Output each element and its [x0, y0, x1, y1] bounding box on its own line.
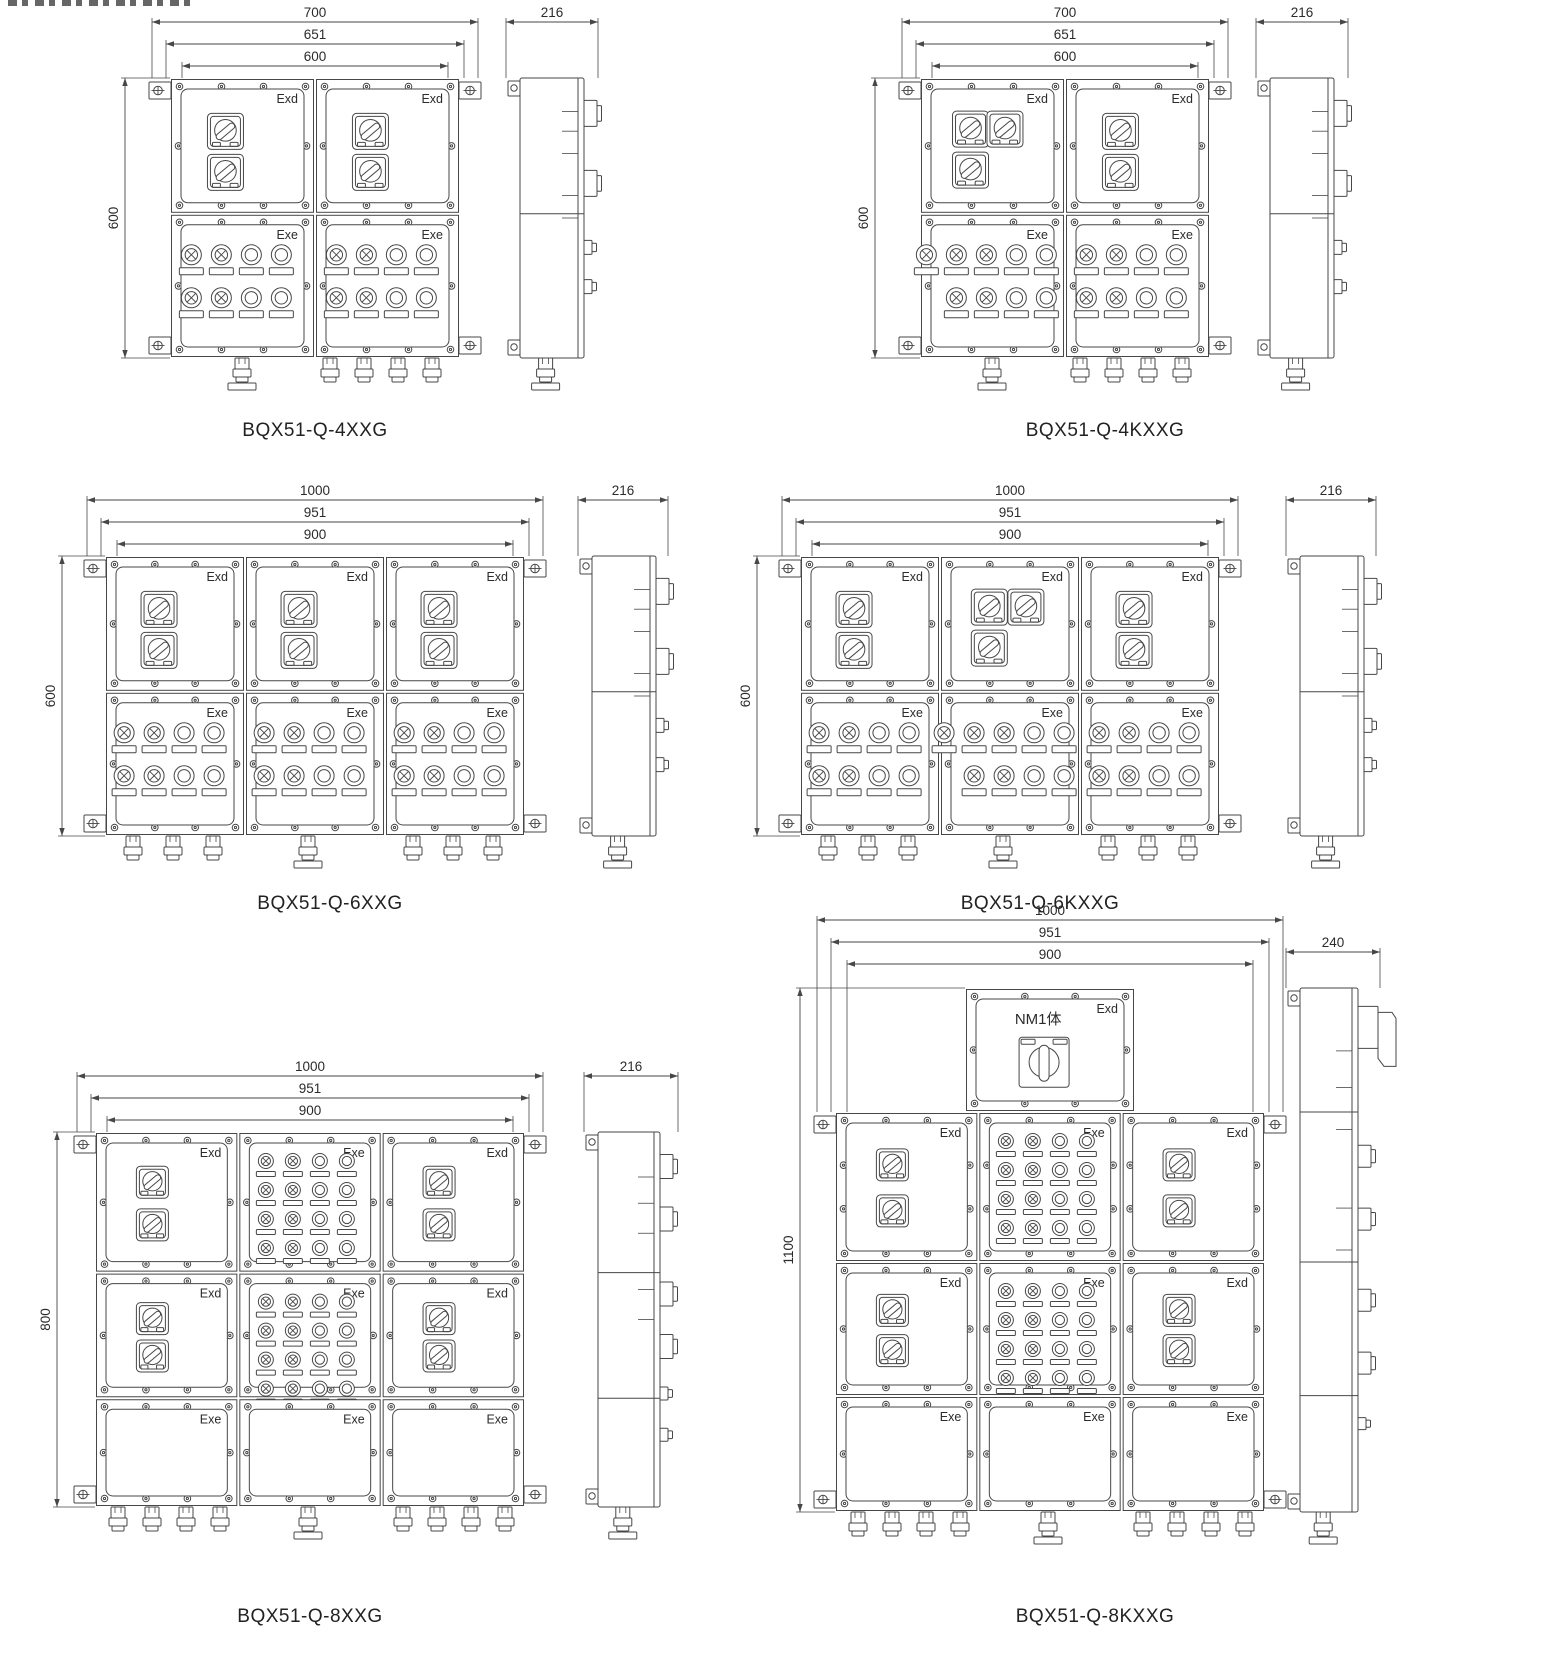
svg-text:Exe: Exe	[421, 228, 443, 242]
push-button	[1052, 1284, 1067, 1299]
cable-gland	[321, 358, 339, 382]
rotary-switch	[141, 591, 177, 627]
cable-gland	[883, 1512, 901, 1536]
push-button	[285, 1241, 300, 1256]
push-button	[484, 766, 504, 786]
push-button	[1025, 1371, 1040, 1386]
dimension: 600	[182, 49, 448, 78]
rotary-switch	[141, 632, 177, 668]
push-button	[1179, 723, 1199, 743]
push-button	[1052, 1163, 1067, 1178]
push-button	[1079, 1134, 1094, 1149]
svg-text:600: 600	[43, 685, 58, 708]
mounting-tab	[1219, 560, 1241, 577]
push-button	[339, 1323, 354, 1338]
push-button	[314, 723, 334, 743]
svg-text:216: 216	[1320, 483, 1343, 498]
push-button	[964, 723, 984, 743]
svg-text:1000: 1000	[300, 483, 330, 498]
push-button	[356, 288, 376, 308]
svg-text:900: 900	[999, 527, 1022, 542]
push-button	[271, 288, 291, 308]
push-button	[869, 766, 889, 786]
svg-text:Exd: Exd	[1096, 1002, 1118, 1016]
push-button	[271, 245, 291, 265]
cable-gland	[1139, 358, 1157, 382]
figure-caption: BQX51-Q-4KXXG	[935, 420, 1275, 442]
side-view: 216	[584, 1059, 678, 1539]
rotary-switch	[352, 113, 388, 149]
push-button	[1106, 288, 1126, 308]
push-button	[312, 1294, 327, 1309]
cable-glands	[228, 358, 441, 390]
push-button	[1119, 723, 1139, 743]
rotary-switch	[1008, 589, 1044, 625]
push-button	[211, 245, 231, 265]
cable-gland	[819, 836, 837, 860]
cable-gland	[1071, 358, 1089, 382]
front-view: ExdExdExeExe	[899, 80, 1231, 357]
svg-text:600: 600	[738, 685, 753, 708]
mounting-tab	[1264, 1491, 1286, 1508]
mounting-tab	[74, 1136, 96, 1153]
svg-text:900: 900	[299, 1103, 322, 1118]
dimension: 216	[1286, 483, 1376, 556]
push-button	[258, 1241, 273, 1256]
push-button	[1179, 766, 1199, 786]
push-button	[181, 245, 201, 265]
cable-gland	[951, 1512, 969, 1536]
cable-gland	[1312, 836, 1340, 868]
svg-text:900: 900	[304, 527, 327, 542]
panel-exe: Exe	[387, 693, 524, 834]
push-button	[344, 723, 364, 743]
cable-gland	[444, 836, 462, 860]
push-button	[1052, 1192, 1067, 1207]
dimension: 900	[812, 527, 1208, 556]
cable-gland	[228, 358, 256, 390]
cable-gland	[211, 1507, 229, 1531]
cable-gland	[1168, 1512, 1186, 1536]
svg-text:1000: 1000	[995, 483, 1025, 498]
panel-exd: Exd	[317, 80, 459, 213]
dimension: 216	[578, 483, 668, 556]
svg-text:Exd: Exd	[1171, 92, 1193, 106]
rotary-switch	[876, 1195, 908, 1227]
dimension: 216	[1256, 5, 1348, 78]
push-button	[344, 766, 364, 786]
push-button	[339, 1183, 354, 1198]
svg-text:Exe: Exe	[206, 706, 228, 720]
rotary-switch	[1116, 632, 1152, 668]
push-button	[1025, 1134, 1040, 1149]
push-button	[1006, 288, 1026, 308]
push-button	[1025, 1342, 1040, 1357]
svg-text:Exe: Exe	[346, 706, 368, 720]
push-button	[1052, 1221, 1067, 1236]
push-button	[241, 288, 261, 308]
panel-exd: Exd	[1123, 1264, 1263, 1395]
push-button	[254, 766, 274, 786]
panel-exd: Exd	[97, 1274, 237, 1397]
figure-bqx51-q-6kxxg: 1000951900600ExdExdExdExeExeExe216	[738, 483, 1382, 868]
dimension: 216	[506, 5, 598, 78]
figure-caption: BQX51-Q-8XXG	[140, 1606, 480, 1628]
push-button	[454, 723, 474, 743]
cable-gland	[428, 1507, 446, 1531]
dimension: 900	[117, 527, 513, 556]
panel-exe: Exe	[1123, 1398, 1263, 1511]
rotary-switch	[876, 1335, 908, 1367]
push-button	[839, 723, 859, 743]
svg-text:951: 951	[299, 1081, 322, 1096]
panel-exe: Exe	[172, 215, 314, 356]
svg-text:651: 651	[1054, 27, 1077, 42]
mounting-tab	[779, 560, 801, 577]
push-button	[1136, 288, 1156, 308]
cable-gland	[1139, 836, 1157, 860]
push-button	[1024, 723, 1044, 743]
push-button	[998, 1284, 1013, 1299]
panel-exd: Exd	[383, 1274, 523, 1397]
cable-gland	[355, 358, 373, 382]
dimension: 800	[38, 1132, 95, 1507]
cable-glands	[849, 1512, 1254, 1544]
cable-gland	[1202, 1512, 1220, 1536]
push-button	[416, 288, 436, 308]
dimension: 900	[107, 1103, 513, 1132]
mounting-tab	[524, 815, 546, 832]
push-button	[998, 1371, 1013, 1386]
svg-text:651: 651	[304, 27, 327, 42]
push-button	[998, 1313, 1013, 1328]
panel-exe: Exe	[247, 693, 384, 834]
panel-exd: Exd	[387, 558, 524, 691]
push-button	[1149, 723, 1169, 743]
front-view: ExdExeExdExdExeExdExeExeExe	[74, 1134, 546, 1506]
push-button	[114, 766, 134, 786]
push-button	[1054, 766, 1074, 786]
svg-text:Exe: Exe	[276, 228, 298, 242]
push-button	[339, 1212, 354, 1227]
svg-text:NM1体: NM1体	[1015, 1011, 1062, 1028]
svg-text:Exd: Exd	[940, 1276, 962, 1290]
mounting-tab	[814, 1116, 836, 1133]
push-button	[1052, 1134, 1067, 1149]
panel-exe: Exe	[1082, 693, 1219, 834]
svg-text:1100: 1100	[781, 1235, 796, 1264]
cable-gland	[532, 358, 560, 390]
rotary-switch	[1163, 1335, 1195, 1367]
cable-gland	[124, 836, 142, 860]
svg-text:951: 951	[304, 505, 327, 520]
rotary-switch	[207, 113, 243, 149]
cable-gland	[389, 358, 407, 382]
rotary-switch	[953, 152, 989, 188]
svg-text:600: 600	[304, 49, 327, 64]
cable-gland	[1105, 358, 1123, 382]
push-button	[356, 245, 376, 265]
panel-exd: Exd	[247, 558, 384, 691]
cable-gland	[1099, 836, 1117, 860]
panel-exe: Exe	[932, 693, 1078, 834]
panel-exe: Exe	[240, 1400, 380, 1506]
rotary-switch	[1163, 1195, 1195, 1227]
push-button	[312, 1323, 327, 1338]
cable-gland	[1236, 1512, 1254, 1536]
svg-text:Exd: Exd	[1226, 1126, 1248, 1140]
push-button	[339, 1381, 354, 1396]
side-view: 216	[1256, 5, 1352, 390]
push-button	[211, 288, 231, 308]
rotary-switch	[971, 630, 1007, 666]
front-view: ExdExdExdExeExeExe	[84, 558, 546, 835]
push-button	[1079, 1371, 1094, 1386]
push-button	[285, 1212, 300, 1227]
panel-exe: Exe	[1067, 215, 1209, 356]
cable-gland	[1179, 836, 1197, 860]
push-button	[258, 1294, 273, 1309]
dimension: 600	[856, 78, 920, 358]
svg-text:Exe: Exe	[1041, 706, 1063, 720]
svg-text:Exd: Exd	[1181, 570, 1203, 584]
svg-text:Exd: Exd	[200, 1287, 222, 1301]
mounting-tab	[779, 815, 801, 832]
rotary-switch	[423, 1340, 455, 1372]
push-button	[416, 245, 436, 265]
cable-gland	[1034, 1512, 1062, 1544]
push-button	[1089, 766, 1109, 786]
cable-gland	[849, 1512, 867, 1536]
push-button	[339, 1241, 354, 1256]
nm1-breaker-box: ExdNM1体	[967, 990, 1134, 1111]
figure-caption: BQX51-Q-8KXXG	[925, 1606, 1265, 1628]
push-button	[946, 245, 966, 265]
cable-gland	[1134, 1512, 1152, 1536]
cable-gland	[109, 1507, 127, 1531]
svg-text:Exd: Exd	[206, 570, 228, 584]
cable-gland	[294, 1507, 322, 1539]
svg-text:Exe: Exe	[1226, 1410, 1248, 1424]
svg-text:600: 600	[856, 207, 871, 230]
push-button	[339, 1294, 354, 1309]
push-button	[899, 766, 919, 786]
panel-exd: Exd	[837, 1264, 977, 1395]
push-button	[314, 766, 334, 786]
panel-exe: Exe	[240, 1274, 380, 1404]
push-button	[964, 766, 984, 786]
svg-text:Exd: Exd	[1026, 92, 1048, 106]
side-view: 216	[1286, 483, 1382, 868]
push-button	[869, 723, 889, 743]
push-button	[1106, 245, 1126, 265]
push-button	[976, 245, 996, 265]
push-button	[312, 1154, 327, 1169]
mounting-tab	[524, 1486, 546, 1503]
push-button	[424, 723, 444, 743]
svg-text:Exe: Exe	[486, 706, 508, 720]
push-button	[312, 1241, 327, 1256]
mounting-tab	[1219, 815, 1241, 832]
rotary-switch	[421, 632, 457, 668]
panel-exd: Exd	[172, 80, 314, 213]
push-button	[839, 766, 859, 786]
rotary-switch	[136, 1340, 168, 1372]
rotary-switch	[1102, 154, 1138, 190]
cable-gland	[1309, 1512, 1337, 1544]
svg-text:Exd: Exd	[200, 1146, 222, 1160]
push-button	[114, 723, 134, 743]
push-button	[1025, 1163, 1040, 1178]
svg-text:Exd: Exd	[1226, 1276, 1248, 1290]
push-button	[258, 1154, 273, 1169]
rotary-switch	[953, 111, 989, 147]
push-button	[326, 288, 346, 308]
push-button	[454, 766, 474, 786]
svg-text:Exd: Exd	[1041, 570, 1063, 584]
cable-gland	[1282, 358, 1310, 390]
push-button	[1052, 1313, 1067, 1328]
push-button	[1036, 288, 1056, 308]
rotary-switch	[352, 154, 388, 190]
panel-exe: Exe	[980, 1114, 1120, 1261]
rotary-switch	[421, 591, 457, 627]
panel-exe: Exe	[914, 215, 1063, 356]
push-button	[1079, 1284, 1094, 1299]
rotary-switch	[987, 111, 1023, 147]
push-button	[285, 1352, 300, 1367]
mounting-tab	[84, 560, 106, 577]
rotary-switch	[971, 589, 1007, 625]
figure-bqx51-q-4xxg: 700651600600ExdExdExeExe216	[106, 5, 602, 390]
cable-gland	[164, 836, 182, 860]
push-button	[312, 1183, 327, 1198]
front-view: ExdExdExeExe	[149, 80, 481, 357]
push-button	[1079, 1221, 1094, 1236]
panel-exe: Exe	[802, 693, 939, 834]
push-button	[339, 1154, 354, 1169]
mounting-tab	[149, 337, 171, 354]
push-button	[258, 1323, 273, 1338]
figure-caption: BQX51-Q-6KXXG	[870, 893, 1210, 915]
svg-text:700: 700	[1054, 5, 1077, 20]
figure-bqx51-q-4kxxg: 700651600600ExdExdExeExe216	[856, 5, 1352, 390]
push-button	[258, 1381, 273, 1396]
svg-text:700: 700	[304, 5, 327, 20]
push-button	[174, 723, 194, 743]
push-button	[998, 1163, 1013, 1178]
push-button	[386, 288, 406, 308]
svg-text:216: 216	[620, 1059, 643, 1074]
svg-text:Exd: Exd	[421, 92, 443, 106]
rotary-switch	[136, 1166, 168, 1198]
svg-text:Exd: Exd	[486, 570, 508, 584]
mounting-tab	[899, 82, 921, 99]
mounting-tab	[1264, 1116, 1286, 1133]
figure-bqx51-q-8xxg: 1000951900800ExdExeExdExdExeExdExeExeExe…	[38, 1059, 678, 1539]
mounting-tab	[814, 1491, 836, 1508]
push-button	[1079, 1163, 1094, 1178]
svg-text:Exe: Exe	[1026, 228, 1048, 242]
front-view: ExdExdExdExeExeExe	[779, 558, 1241, 835]
push-button	[284, 723, 304, 743]
panel-exe: Exe	[383, 1400, 523, 1506]
cable-gland	[496, 1507, 514, 1531]
push-button	[1025, 1313, 1040, 1328]
svg-text:Exd: Exd	[346, 570, 368, 584]
push-button	[312, 1381, 327, 1396]
dimension: 240	[1286, 935, 1380, 988]
cable-gland	[294, 836, 322, 868]
push-button	[1076, 245, 1096, 265]
push-button	[1025, 1284, 1040, 1299]
panel-exd: Exd	[1067, 80, 1209, 213]
push-button	[1166, 245, 1186, 265]
panel-exe: Exe	[980, 1398, 1120, 1511]
panel-exd: Exd	[922, 80, 1064, 213]
svg-text:Exe: Exe	[1083, 1410, 1105, 1424]
push-button	[916, 245, 936, 265]
push-button	[144, 766, 164, 786]
svg-text:Exe: Exe	[486, 1412, 508, 1426]
rotary-switch	[1116, 591, 1152, 627]
mounting-tab	[84, 815, 106, 832]
cable-gland	[394, 1507, 412, 1531]
rotary-switch	[836, 591, 872, 627]
svg-text:216: 216	[1291, 5, 1314, 20]
push-button	[285, 1381, 300, 1396]
push-button	[946, 288, 966, 308]
panel-exe: Exe	[240, 1134, 380, 1272]
dimension: 600	[738, 556, 800, 836]
push-button	[994, 766, 1014, 786]
mounting-tab	[149, 82, 171, 99]
rotary-switch	[423, 1303, 455, 1335]
push-button	[285, 1183, 300, 1198]
svg-text:216: 216	[541, 5, 564, 20]
mounting-tab	[1209, 82, 1231, 99]
push-button	[809, 723, 829, 743]
rotary-switch	[423, 1209, 455, 1241]
panel-exe: Exe	[980, 1264, 1120, 1395]
push-button	[809, 766, 829, 786]
panel-exd: Exd	[942, 558, 1079, 691]
technical-drawing-sheet: 700651600600ExdExdExeExe216700651600600E…	[0, 0, 1553, 1662]
push-button	[394, 766, 414, 786]
cable-glands	[819, 836, 1197, 868]
mounting-tab	[524, 1136, 546, 1153]
svg-text:900: 900	[1039, 947, 1062, 962]
push-button	[285, 1323, 300, 1338]
dimension: 216	[584, 1059, 678, 1132]
panel-exd: Exd	[107, 558, 244, 691]
push-button	[1076, 288, 1096, 308]
figure-bqx51-q-6xxg: 1000951900600ExdExdExdExeExeExe216	[43, 483, 674, 868]
cable-gland	[1173, 358, 1191, 382]
push-button	[258, 1212, 273, 1227]
svg-text:Exd: Exd	[940, 1126, 962, 1140]
push-button	[326, 245, 346, 265]
rotary-switch	[207, 154, 243, 190]
panel-exd: Exd	[1082, 558, 1219, 691]
svg-text:Exe: Exe	[200, 1412, 222, 1426]
rotary-switch	[423, 1166, 455, 1198]
push-button	[998, 1342, 1013, 1357]
svg-text:Exe: Exe	[1181, 706, 1203, 720]
svg-text:951: 951	[1039, 925, 1062, 940]
cable-gland	[462, 1507, 480, 1531]
bqx51-dimension-drawings: 700651600600ExdExdExeExe216700651600600E…	[0, 0, 1553, 1662]
